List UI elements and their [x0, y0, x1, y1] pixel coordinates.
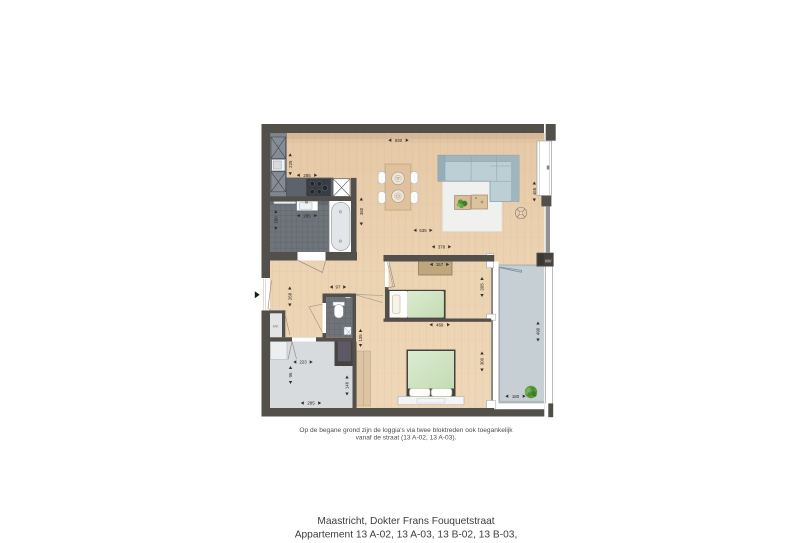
svg-text:180: 180 — [512, 394, 520, 399]
svg-text:268: 268 — [288, 292, 293, 300]
svg-text:157: 157 — [436, 262, 444, 267]
svg-text:Appartement 13 A-02, 13 A-03,: Appartement 13 A-02, 13 A-03, 13 B-02, 1… — [295, 530, 518, 541]
svg-text:469: 469 — [436, 322, 444, 327]
svg-text:285: 285 — [303, 173, 311, 178]
svg-text:Op de begane grond zijn de log: Op de begane grond zijn de loggia's via … — [299, 427, 513, 434]
svg-text:Maastricht, Dokter Frans Fouqu: Maastricht, Dokter Frans Fouquetstraat — [317, 516, 494, 527]
svg-text:vanaf de straat (13 A-02, 13 A: vanaf de straat (13 A-02, 13 A-03). — [356, 435, 457, 442]
svg-text:300: 300 — [480, 357, 485, 365]
svg-text:135: 135 — [358, 334, 363, 342]
svg-text:285: 285 — [307, 401, 315, 406]
svg-text:465: 465 — [532, 187, 537, 195]
svg-text:490: 490 — [536, 327, 541, 335]
svg-text:223: 223 — [299, 360, 307, 365]
svg-text:96: 96 — [288, 372, 293, 377]
svg-text:360: 360 — [359, 207, 364, 215]
svg-text:285: 285 — [303, 213, 311, 218]
svg-text:635: 635 — [419, 228, 427, 233]
svg-text:180: 180 — [274, 216, 279, 224]
svg-text:146: 146 — [345, 381, 350, 389]
svg-text:225: 225 — [288, 160, 293, 168]
svg-text:378: 378 — [438, 245, 446, 250]
svg-text:MV: MV — [545, 258, 551, 263]
svg-text:930: 930 — [395, 138, 403, 143]
svg-text:205: 205 — [480, 283, 485, 291]
svg-text:MK: MK — [273, 324, 279, 329]
svg-text:97: 97 — [336, 285, 341, 290]
